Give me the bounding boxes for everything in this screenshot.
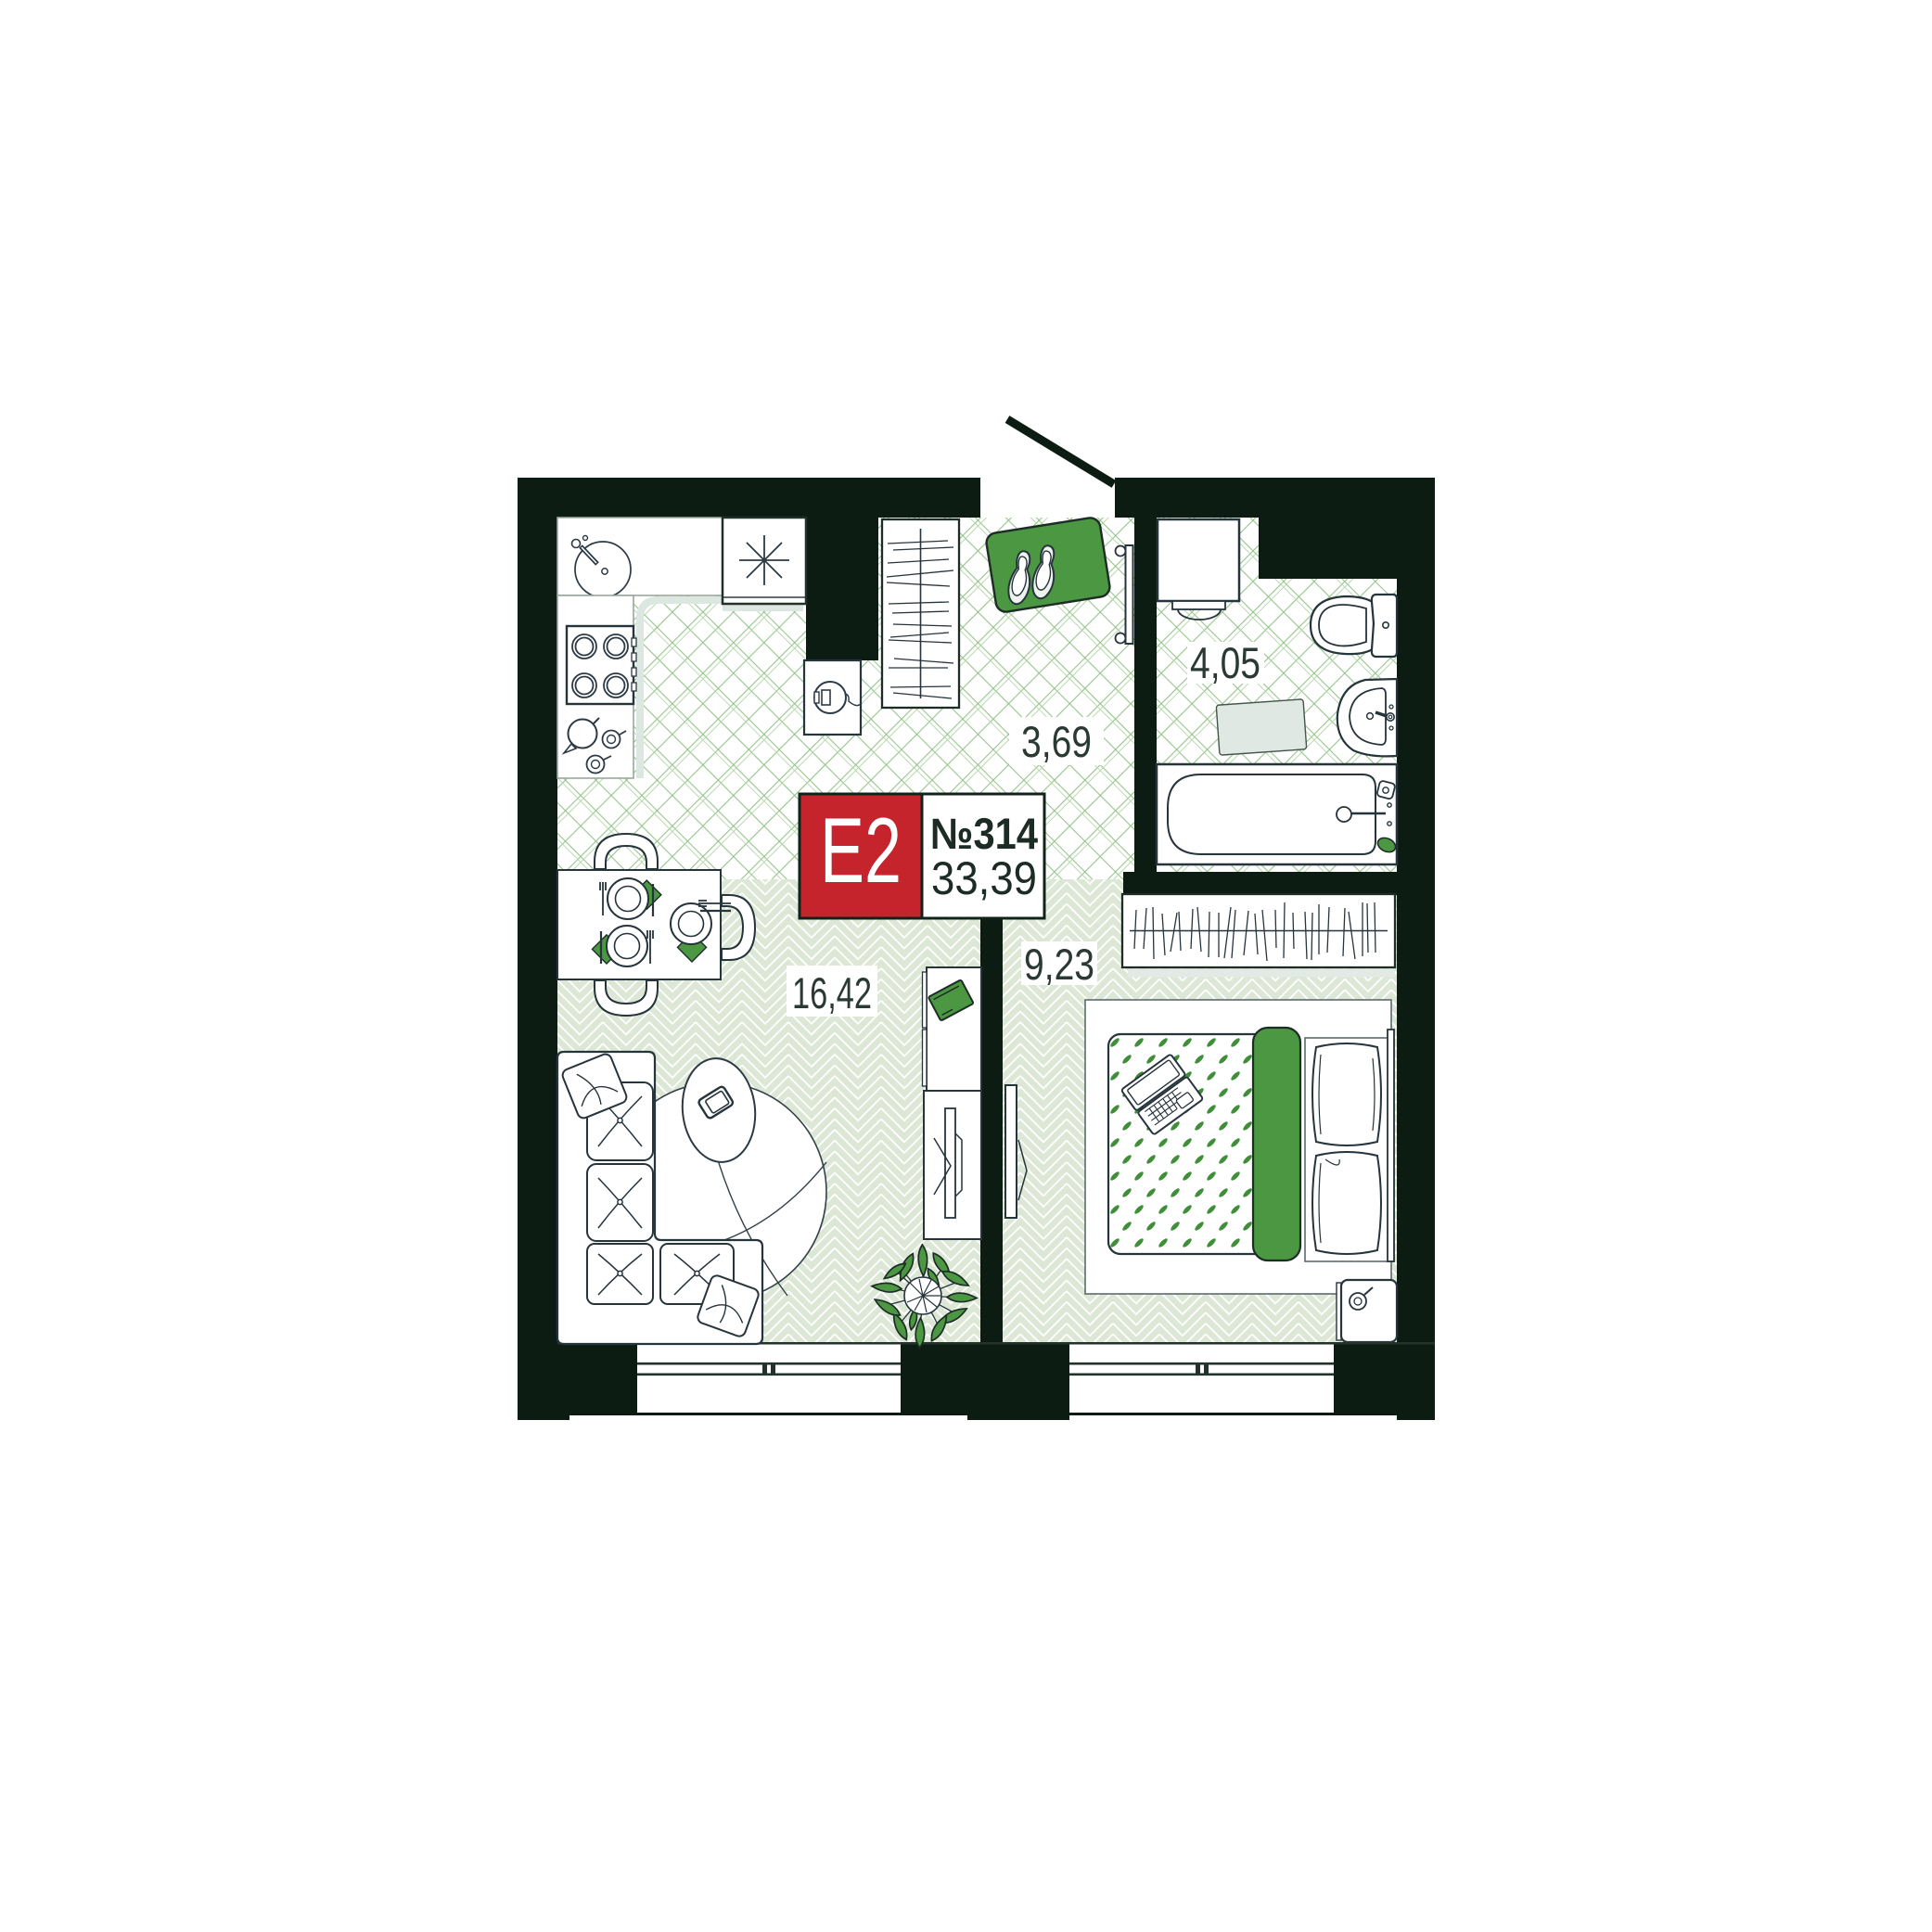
svg-text:E2: E2 — [820, 799, 902, 902]
svg-text:4,05: 4,05 — [1190, 638, 1260, 687]
svg-text:9,23: 9,23 — [1024, 940, 1094, 989]
svg-text:№314: №314 — [930, 809, 1038, 858]
svg-text:3,69: 3,69 — [1021, 717, 1092, 766]
svg-text:33,39: 33,39 — [931, 852, 1037, 904]
svg-text:16,42: 16,42 — [792, 968, 872, 1017]
